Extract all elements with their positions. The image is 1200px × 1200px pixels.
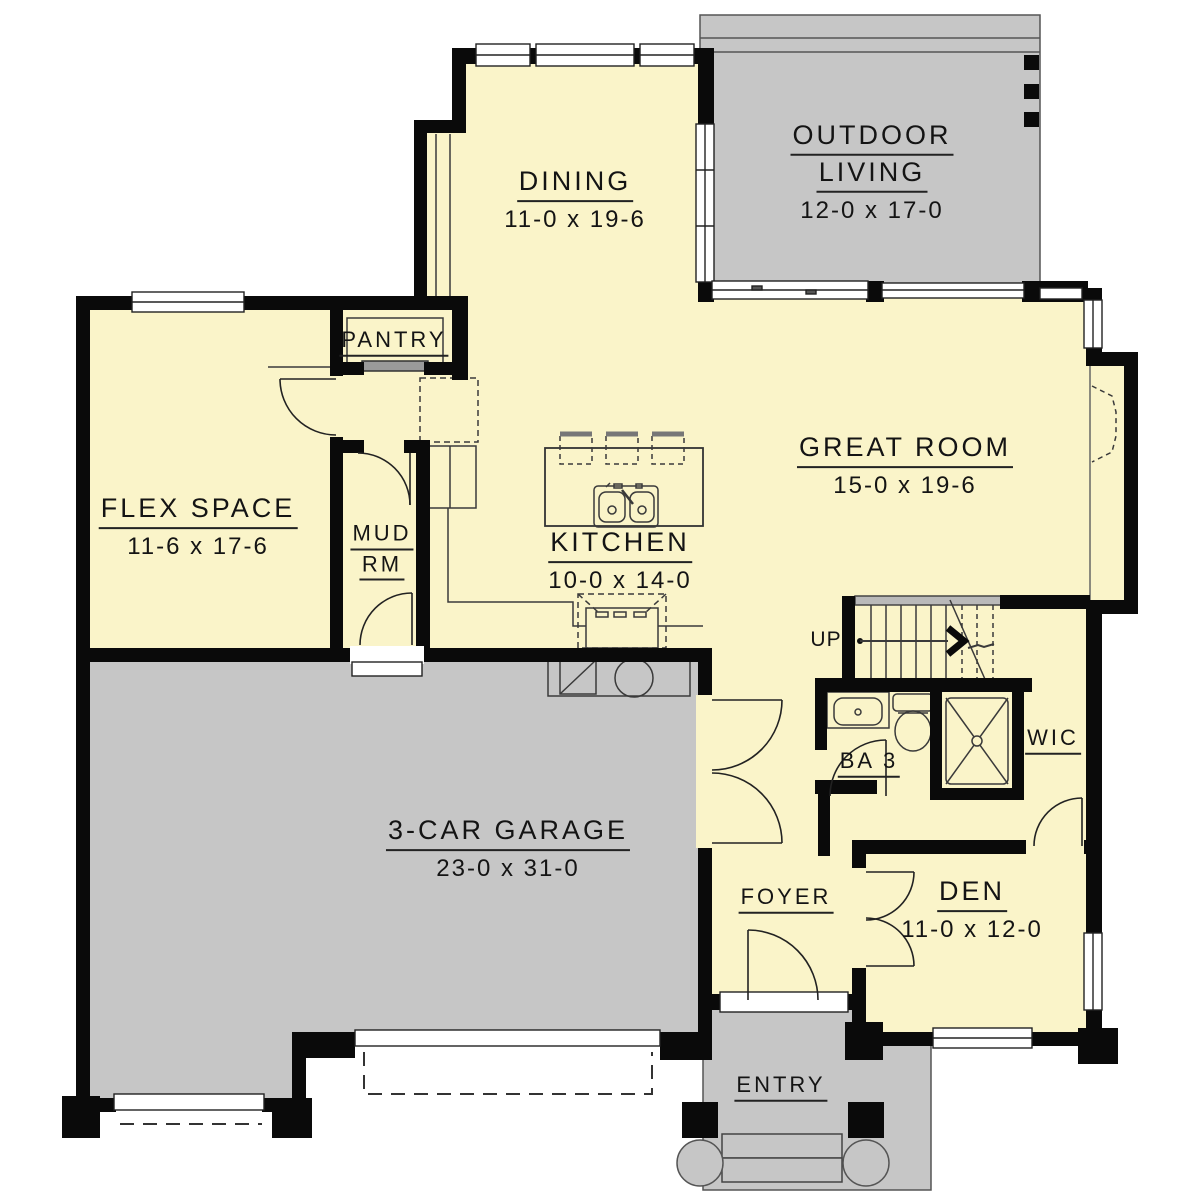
garage-door-opening [355, 1030, 660, 1046]
window [1084, 300, 1102, 348]
mud-room-door-opening [350, 646, 424, 664]
room-name: MUD [350, 520, 413, 551]
pantry-slider-door [362, 361, 428, 371]
room-label-wic: WIC [1025, 724, 1081, 755]
room-label-outdoor-living: OUTDOOR LIVING 12-0 x 17-0 [791, 119, 954, 226]
kitchen-island [545, 448, 703, 526]
room-name: FOYER [739, 883, 834, 914]
room-name: GREAT ROOM [797, 431, 1013, 468]
room-dims: 23-0 x 31-0 [386, 854, 630, 884]
room-name: KITCHEN [548, 526, 692, 563]
window [476, 44, 530, 66]
stairs-up-label: UP [810, 627, 841, 653]
porch-column [677, 1140, 723, 1186]
sliding-door [712, 281, 868, 299]
room-label-entry: ENTRY [734, 1071, 827, 1102]
room-label-mud-room: MUD RM [350, 520, 413, 581]
room-label-flex-space: FLEX SPACE 11-6 x 17-6 [99, 492, 298, 562]
front-door-opening [720, 992, 848, 1012]
room-name: OUTDOOR [791, 119, 954, 156]
room-name: 3-CAR GARAGE [386, 814, 630, 851]
room-label-foyer: FOYER [739, 883, 834, 914]
window [882, 283, 1024, 298]
room-label-great-room: GREAT ROOM 15-0 x 19-6 [797, 431, 1013, 501]
room-dims: 12-0 x 17-0 [791, 195, 954, 225]
window [132, 292, 244, 312]
window [933, 1028, 1032, 1048]
entry-steps [722, 1134, 842, 1182]
room-label-garage: 3-CAR GARAGE 23-0 x 31-0 [386, 814, 630, 884]
room-dims: 11-0 x 19-6 [504, 205, 646, 235]
room-label-ba3: BA 3 [838, 747, 900, 778]
room-name: BA 3 [838, 747, 900, 778]
room-label-kitchen: KITCHEN 10-0 x 14-0 [548, 526, 692, 596]
room-dims: 11-6 x 17-6 [99, 532, 298, 562]
room-dims: 15-0 x 19-6 [797, 471, 1013, 501]
garage-door-panel [364, 1052, 652, 1094]
room-name: LIVING [817, 156, 928, 193]
room-name: ENTRY [734, 1071, 827, 1102]
room-dims: 11-0 x 12-0 [901, 915, 1043, 945]
room-label-den: DEN 11-0 x 12-0 [901, 875, 1043, 945]
room-name: PANTRY [339, 326, 448, 357]
window [536, 44, 634, 66]
room-label-pantry: PANTRY [339, 326, 448, 357]
window [640, 44, 694, 66]
garage-door-opening [114, 1094, 264, 1110]
window [1084, 933, 1102, 1010]
room-name: WIC [1025, 724, 1081, 755]
room-name: DINING [517, 165, 634, 202]
room-name: RM [360, 550, 404, 581]
floor-plan-page: DINING 11-0 x 19-6 OUTDOOR LIVING 12-0 x… [0, 0, 1200, 1200]
foyer-area [705, 850, 855, 1002]
window [1040, 288, 1082, 299]
up-text: UP [810, 628, 841, 651]
mud-room-step [352, 662, 422, 676]
room-name: FLEX SPACE [99, 492, 298, 529]
room-dims: 10-0 x 14-0 [548, 566, 692, 596]
window [696, 124, 714, 282]
porch-column [843, 1140, 889, 1186]
room-label-dining: DINING 11-0 x 19-6 [504, 165, 646, 235]
room-name: DEN [937, 875, 1007, 912]
